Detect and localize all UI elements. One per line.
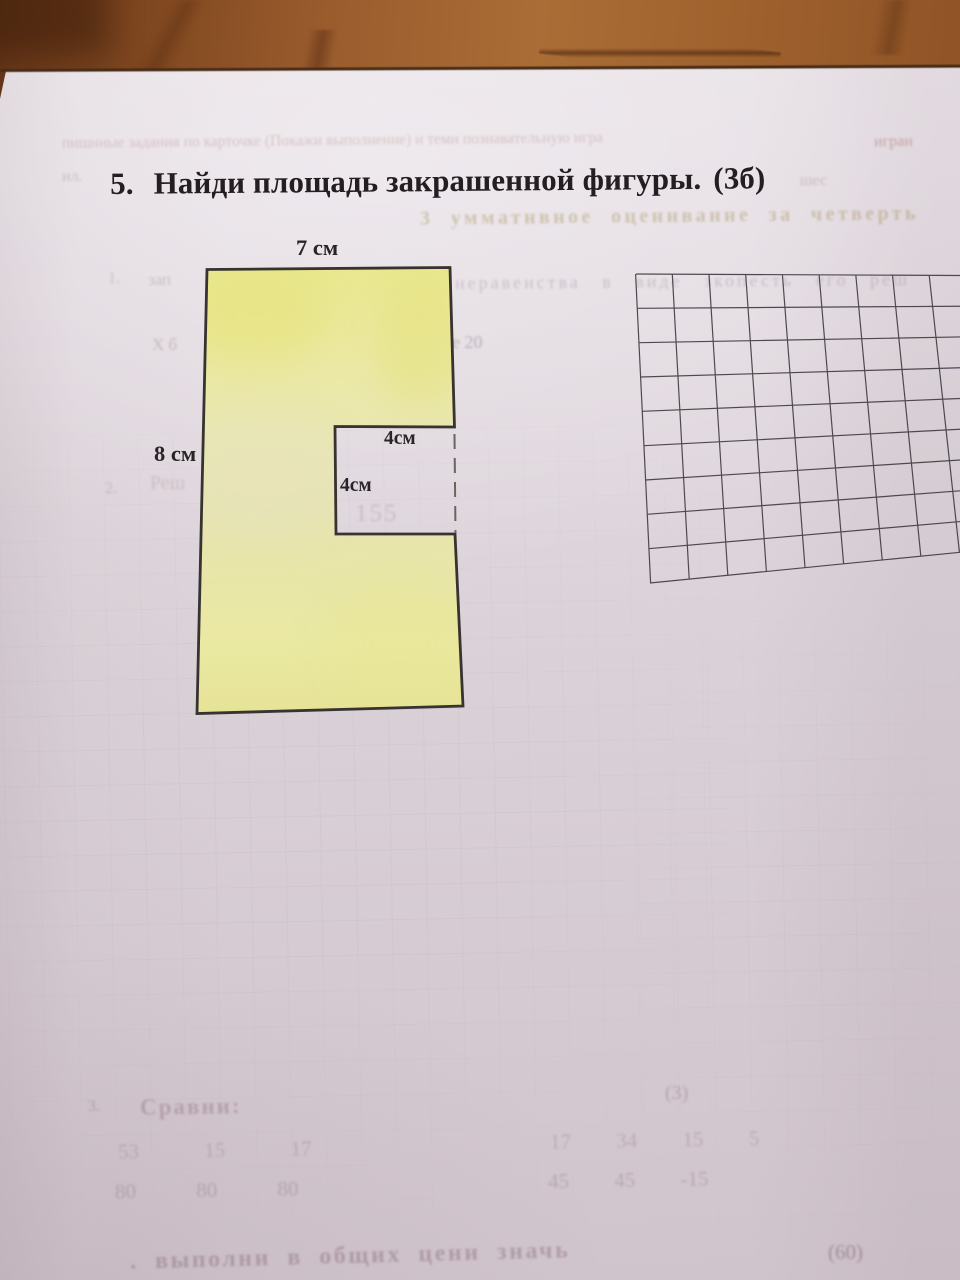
svg-text:4см: 4см [384, 428, 416, 449]
svg-text:4см: 4см [340, 475, 372, 496]
svg-text:7 см: 7 см [296, 235, 338, 260]
svg-text:8 см: 8 см [154, 441, 196, 466]
